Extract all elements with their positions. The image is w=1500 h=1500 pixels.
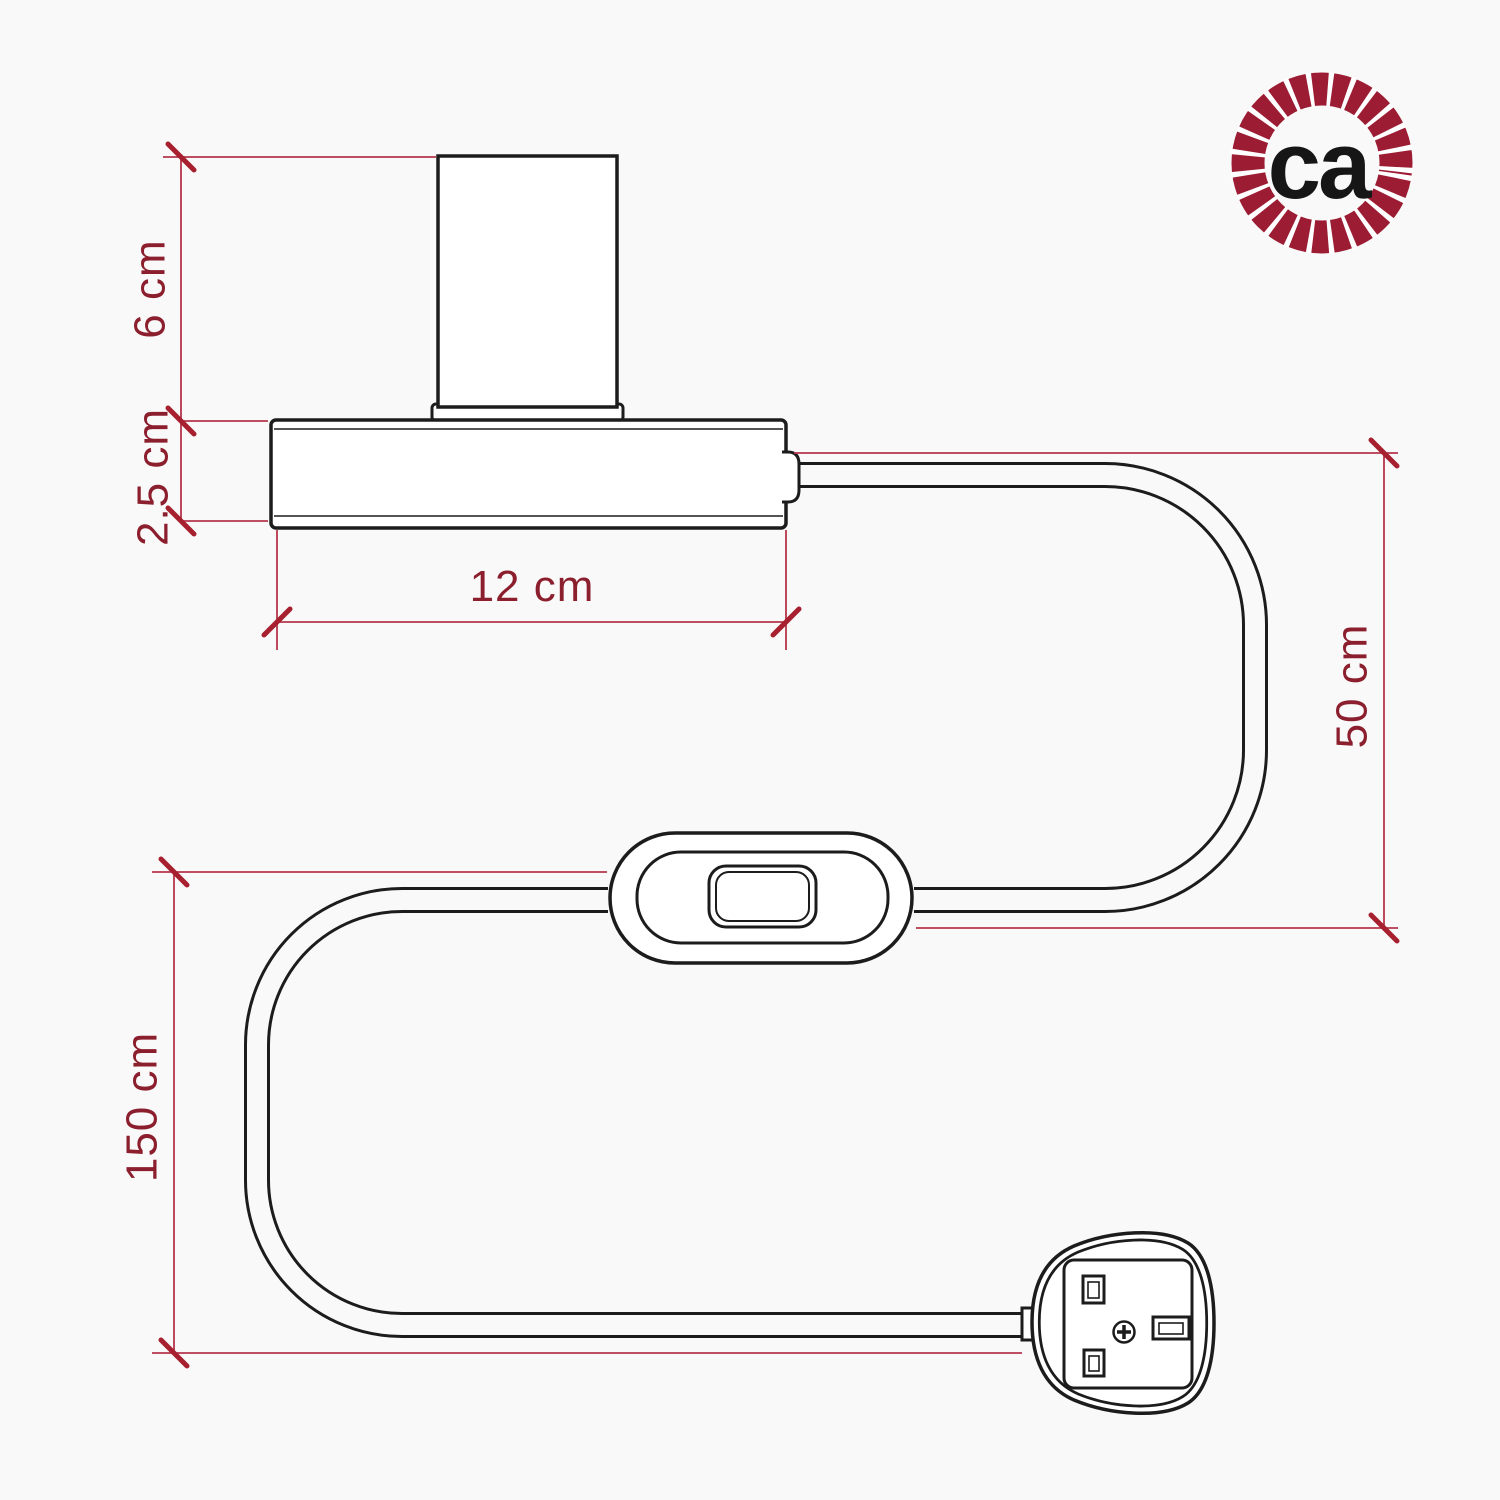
lamp-holder (438, 156, 617, 407)
base-cable-connector (782, 452, 799, 502)
label-base-width: 12 cm (470, 562, 595, 611)
label-lamp-holder-height: 6 cm (126, 239, 175, 338)
dimension-labels: 6 cm 2.5 cm 12 cm 50 cm 150 cm (118, 239, 1377, 1182)
lamp-base (271, 420, 786, 528)
brand-logo-text: ca (1268, 112, 1372, 219)
cable-switch-to-plug (257, 900, 1036, 1325)
product-dimension-diagram: 6 cm 2.5 cm 12 cm 50 cm 150 cm ca (0, 0, 1500, 1500)
inline-switch (610, 833, 912, 963)
dimension-lines (152, 157, 1398, 1353)
uk-plug (1022, 1233, 1214, 1414)
lamp (271, 156, 799, 528)
cable-interior (257, 900, 1036, 1325)
diagram-svg: 6 cm 2.5 cm 12 cm 50 cm 150 cm ca (0, 0, 1500, 1500)
brand-logo: ca (1238, 79, 1405, 246)
dimension-ticks (161, 144, 1397, 1366)
label-base-to-switch: 50 cm (1328, 624, 1377, 749)
label-switch-to-plug: 150 cm (118, 1032, 167, 1182)
label-base-height: 2.5 cm (129, 408, 178, 546)
